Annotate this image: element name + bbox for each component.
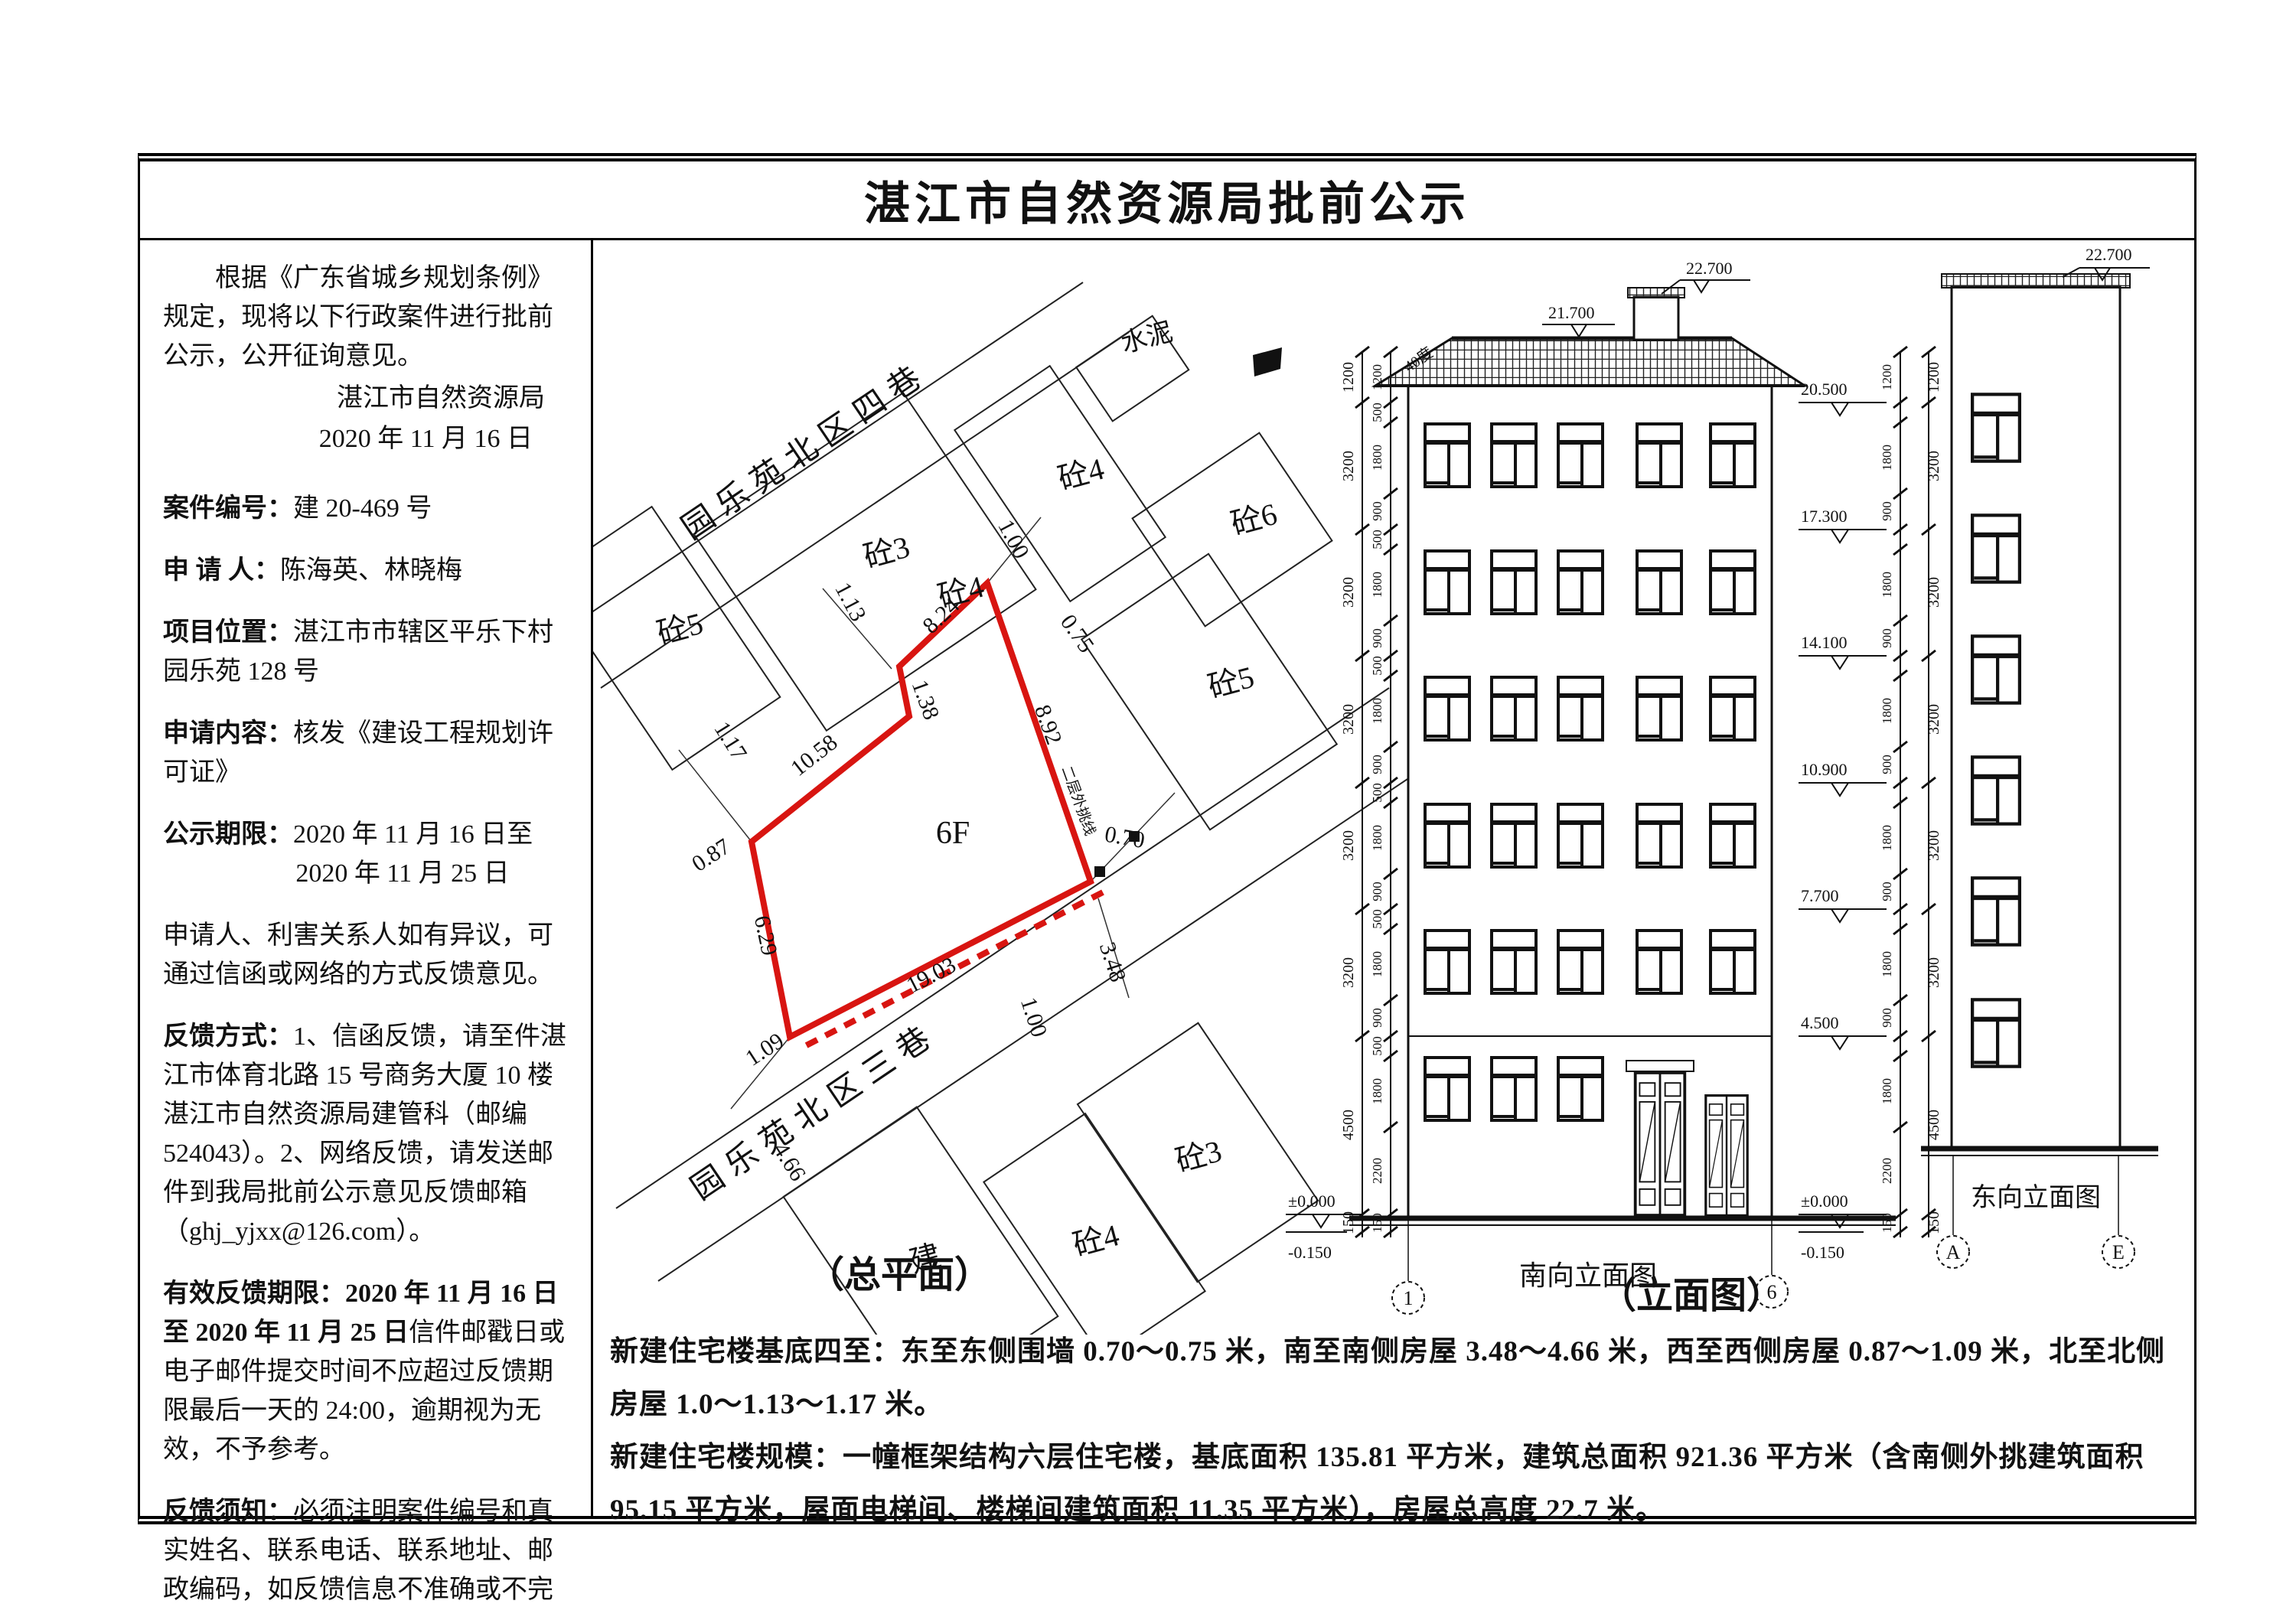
footer-boundaries-label: 新建住宅楼基底四至：	[610, 1336, 901, 1367]
level-label: 22.700	[1686, 259, 1733, 278]
street-name-south: 园乐苑北区三巷	[685, 1016, 944, 1208]
south-left-inner-dims: 1200 500 1800 900 500 1800 900 500 1800 …	[1370, 364, 1384, 1233]
dim-label: 150	[1926, 1211, 1942, 1234]
field-note-label: 反馈须知：	[163, 1498, 293, 1526]
dim-label: 500	[1370, 1036, 1384, 1056]
dim-label: 4500	[1926, 1110, 1942, 1140]
field-content: 申请内容：核发《建设工程规划许可证》	[163, 714, 571, 792]
dim-label: 150	[1880, 1213, 1894, 1233]
south-elevation: 1200 3200 3200 3200 3200 3200 4500 150 1…	[1286, 259, 1942, 1314]
dim-label: 3200	[1340, 577, 1357, 608]
stair-bulkhead	[1634, 297, 1678, 340]
field-case-no: 案件编号：建 20-469 号	[163, 489, 571, 528]
dim-label: 1800	[1880, 951, 1894, 977]
level-label: 17.300	[1801, 507, 1848, 526]
south-left-outer-dims: 1200 3200 3200 3200 3200 3200 4500 150	[1340, 362, 1357, 1234]
field-applicant-label: 申 请 人：	[163, 556, 280, 585]
dim-label: 1800	[1880, 572, 1894, 598]
notice-page: 湛江市自然资源局批前公示 根据《广东省城乡规划条例》规定，现将以下行政案件进行批…	[0, 0, 2296, 1607]
dim-label: 3200	[1926, 577, 1942, 608]
field-applicant-value: 陈海英、林晓梅	[280, 556, 462, 585]
notice-sheet: 湛江市自然资源局批前公示 根据《广东省城乡规划条例》规定，现将以下行政案件进行批…	[138, 153, 2197, 1524]
field-case-no-value: 建 20-469 号	[293, 494, 432, 523]
field-valid-period: 有效反馈期限：2020 年 11 月 16 日至 2020 年 11 月 25 …	[163, 1274, 571, 1469]
dim-label: 1800	[1370, 825, 1384, 851]
dim-label: 900	[1880, 882, 1894, 901]
east-elevation: 22.700	[1921, 245, 2158, 1268]
building-label: 砼6	[1228, 497, 1281, 542]
building-label: 水泥	[1118, 318, 1176, 358]
notice-text-column: 根据《广东省城乡规划条例》规定，现将以下行政案件进行批前公示，公开征询意见。 湛…	[140, 240, 593, 1516]
level-label: -0.150	[1288, 1243, 1332, 1262]
dim-label: 3200	[1926, 957, 1942, 988]
field-valid-label: 有效反馈期限：	[163, 1279, 345, 1308]
building-label: 砼3	[860, 530, 914, 575]
dim-label: 1800	[1880, 445, 1894, 471]
street-name-north: 园乐苑北区四巷	[676, 356, 935, 547]
field-feedback-label: 反馈方式：	[163, 1022, 293, 1051]
field-period-label: 公示期限：	[163, 820, 293, 849]
level-label: 4.500	[1801, 1013, 1839, 1032]
bulkhead-cap	[1628, 288, 1684, 298]
dim-label: 6.29	[749, 914, 782, 958]
field-note: 反馈须知：必须注明案件编号和真实姓名、联系电话、联系地址、邮政编码，如反馈信息不…	[163, 1492, 571, 1607]
plot-floors-label: 6F	[936, 816, 970, 851]
dim-label: 0.87	[687, 833, 735, 876]
grid-bubble-label: E	[2112, 1241, 2125, 1263]
dim-label: 900	[1880, 628, 1894, 648]
field-case-no-label: 案件编号：	[163, 494, 293, 523]
notice-issuer: 湛江市自然资源局	[163, 379, 571, 418]
dim-label: 900	[1370, 501, 1384, 521]
dim-label: 2200	[1880, 1158, 1894, 1184]
level-label: 10.900	[1801, 760, 1848, 779]
dim-label: 3200	[1926, 451, 1942, 481]
dim-label: 1800	[1880, 825, 1894, 851]
dim-label: 3200	[1340, 957, 1357, 988]
dim-label: 900	[1370, 882, 1384, 901]
footer-scale: 新建住宅楼规模：一幢框架结构六层住宅楼，基底面积 135.81 平方米，建筑总面…	[610, 1431, 2180, 1537]
dim-label: 500	[1370, 656, 1384, 676]
dim-label: 1200	[1880, 364, 1894, 390]
south-right-levels: 20.500 17.300 14.100 10.900 7.700 4.500	[1799, 380, 1887, 1262]
level-label: -0.150	[1801, 1243, 1844, 1262]
field-content-label: 申请内容：	[163, 719, 293, 748]
footer-notes: 新建住宅楼基底四至：东至东侧围墙 0.70～0.75 米，南至南侧房屋 3.48…	[610, 1325, 2180, 1537]
south-right-inner-dims: 1200 1800 900 1800 900 1800 900 1800 900…	[1880, 364, 1894, 1233]
field-location: 项目位置：湛江市市辖区平乐下村园乐苑 128 号	[163, 613, 571, 691]
south-roof	[1375, 338, 1805, 386]
dim-label: 1.00	[1016, 994, 1052, 1040]
dim-label: 1800	[1370, 698, 1384, 724]
level-label: ±0.000	[1288, 1191, 1336, 1211]
level-label: ±0.000	[1801, 1191, 1848, 1211]
dim-label: 3200	[1340, 451, 1357, 481]
grid-bubble-label: A	[1946, 1241, 1961, 1263]
side-door	[1706, 1096, 1747, 1216]
building-label: 砼5	[654, 606, 707, 651]
east-caption: 东向立面图	[1971, 1183, 2101, 1212]
building-label: 砼3	[1172, 1133, 1225, 1178]
dim-label: 900	[1370, 1008, 1384, 1028]
footer-boundaries: 新建住宅楼基底四至：东至东侧围墙 0.70～0.75 米，南至南侧房屋 3.48…	[610, 1325, 2180, 1431]
dim-label: 3200	[1926, 704, 1942, 735]
dim-label: 900	[1880, 501, 1894, 521]
east-roof	[1942, 274, 2130, 288]
plan-flag-mark	[1253, 347, 1282, 376]
sheet-body: 根据《广东省城乡规划条例》规定，现将以下行政案件进行批前公示，公开征询意见。 湛…	[140, 240, 2194, 1516]
dim-label: 500	[1370, 909, 1384, 929]
dim-label: 1800	[1370, 1078, 1384, 1104]
building-label: 砼4	[1055, 451, 1108, 497]
dim-label: 3200	[1340, 830, 1357, 861]
dim-label: 900	[1880, 1008, 1894, 1028]
dim-label: 0.70	[1103, 821, 1146, 853]
field-period-line1: 2020 年 11 月 16 日至	[293, 820, 533, 849]
grid-bubble-label: 1	[1404, 1287, 1414, 1309]
dim-label: 1800	[1370, 572, 1384, 598]
dim-label: 2200	[1370, 1158, 1384, 1184]
dim-label: 19.03	[902, 952, 960, 998]
dim-label: 500	[1370, 530, 1384, 549]
dim-label: 500	[1370, 403, 1384, 422]
door-canopy	[1626, 1061, 1694, 1071]
site-plan: 园乐苑北区四巷 园乐苑北区三巷 砼5 砼3 砼4 砼4 砼6 砼5 水泥 砼3	[593, 282, 1424, 1335]
level-label: 14.100	[1801, 633, 1848, 652]
dim-label: 1800	[1880, 1078, 1894, 1104]
roof-level-21700: 21.700	[1542, 303, 1615, 337]
level-label: 22.700	[2086, 245, 2132, 264]
entrance-door	[1636, 1073, 1685, 1215]
field-period: 公示期限：2020 年 11 月 16 日至2020 年 11 月 25 日	[163, 815, 571, 893]
dim-label: 900	[1370, 628, 1384, 648]
dim-label: 3.48	[1094, 939, 1131, 985]
dim-label: 1800	[1370, 951, 1384, 977]
field-location-label: 项目位置：	[163, 618, 293, 647]
field-feedback: 反馈方式：1、信函反馈，请至件湛江市体育北路 15 号商务大厦 10 楼湛江市自…	[163, 1017, 571, 1251]
footer-scale-label: 新建住宅楼规模：	[610, 1442, 843, 1473]
dim-label: 4500	[1340, 1110, 1357, 1140]
dim-label: 1200	[1340, 362, 1357, 393]
field-applicant: 申 请 人：陈海英、林晓梅	[163, 551, 571, 590]
level-label: 20.500	[1801, 380, 1848, 399]
building-label: 砼4	[1069, 1217, 1123, 1263]
notice-objection: 申请人、利害关系人如有异议，可通过信函或网络的方式反馈意见。	[163, 916, 571, 994]
dim-label: 1.13	[830, 579, 871, 626]
dim-label: 1.09	[741, 1028, 788, 1071]
elevation-caption: （立面图）	[1600, 1276, 1783, 1316]
dim-label: 1.00	[993, 516, 1034, 563]
dim-label: 3200	[1926, 830, 1942, 861]
notice-intro: 根据《广东省城乡规划条例》规定，现将以下行政案件进行批前公示，公开征询意见。	[163, 259, 571, 376]
wall-post	[1094, 866, 1105, 877]
level-label: 7.700	[1801, 886, 1839, 905]
page-title: 湛江市自然资源局批前公示	[140, 161, 2194, 240]
dim-label: 1800	[1880, 698, 1894, 724]
dim-label: 1200	[1926, 362, 1942, 393]
level-label: 21.700	[1548, 303, 1595, 322]
dim-label: 500	[1370, 783, 1384, 803]
drawings-cell: 园乐苑北区四巷 园乐苑北区三巷 砼5 砼3 砼4 砼4 砼6 砼5 水泥 砼3	[593, 240, 2194, 1516]
field-period-line2: 2020 年 11 月 25 日	[295, 854, 571, 893]
dim-label: 900	[1370, 755, 1384, 774]
drawings-svg: 园乐苑北区四巷 园乐苑北区三巷 砼5 砼3 砼4 砼4 砼6 砼5 水泥 砼3	[593, 240, 2198, 1335]
dim-label: 3200	[1340, 704, 1357, 735]
notice-issue-date: 2020 年 11 月 16 日	[163, 419, 571, 458]
building-label: 砼5	[1205, 660, 1258, 705]
street-lines	[593, 282, 1424, 1281]
dim-label: 8.92	[1029, 702, 1067, 748]
plan-caption: （总平面）	[807, 1255, 991, 1296]
dim-label: 900	[1880, 755, 1894, 774]
dim-label: 0.75	[1055, 610, 1099, 657]
dim-label: 1800	[1370, 445, 1384, 471]
